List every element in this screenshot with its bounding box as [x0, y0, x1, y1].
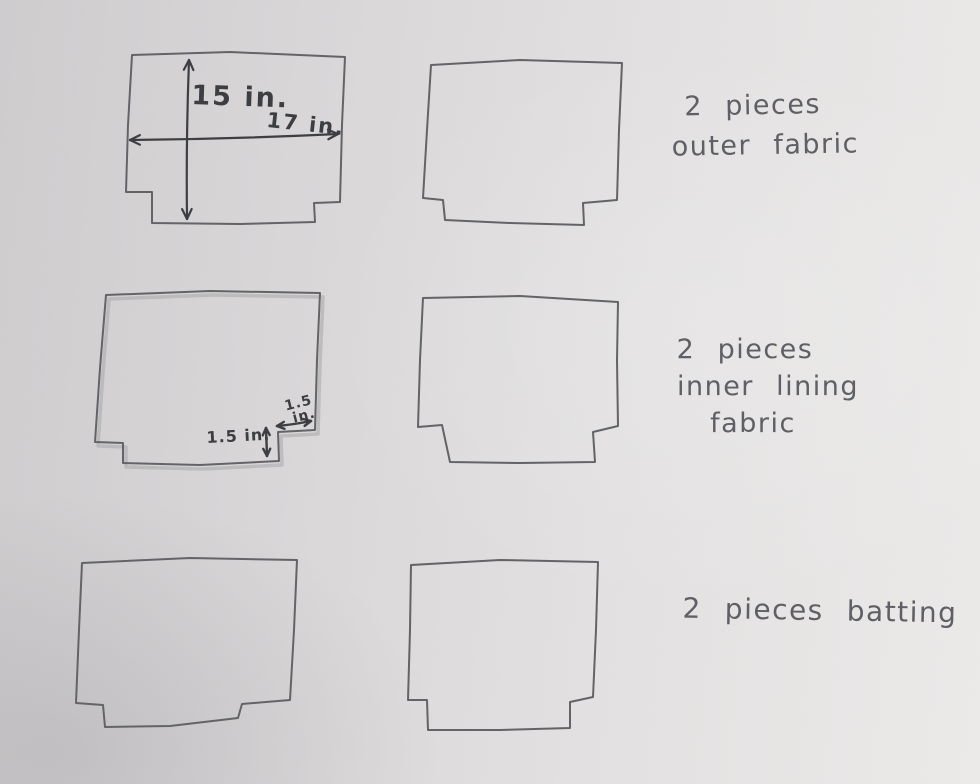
sketch-paper-sheet: 15 in. 17 in. 1.5 in. 1.5 in. 2 pieces o…: [0, 0, 980, 784]
note-line: 2 pieces: [625, 331, 865, 368]
note-line: fabric: [633, 405, 873, 442]
note-line: inner lining: [648, 368, 888, 405]
note-inner-lining: 2 pieces inner lining fabric: [645, 331, 885, 442]
note-line: 2 pieces: [632, 84, 873, 128]
note-outer-fabric: 2 pieces outer fabric: [644, 84, 885, 168]
note-line: outer fabric: [645, 124, 886, 168]
note-line: 2 pieces batting: [680, 590, 961, 633]
notch-height-dimension-label: 1.5 in.: [206, 425, 271, 447]
note-batting: 2 pieces batting: [680, 590, 961, 633]
